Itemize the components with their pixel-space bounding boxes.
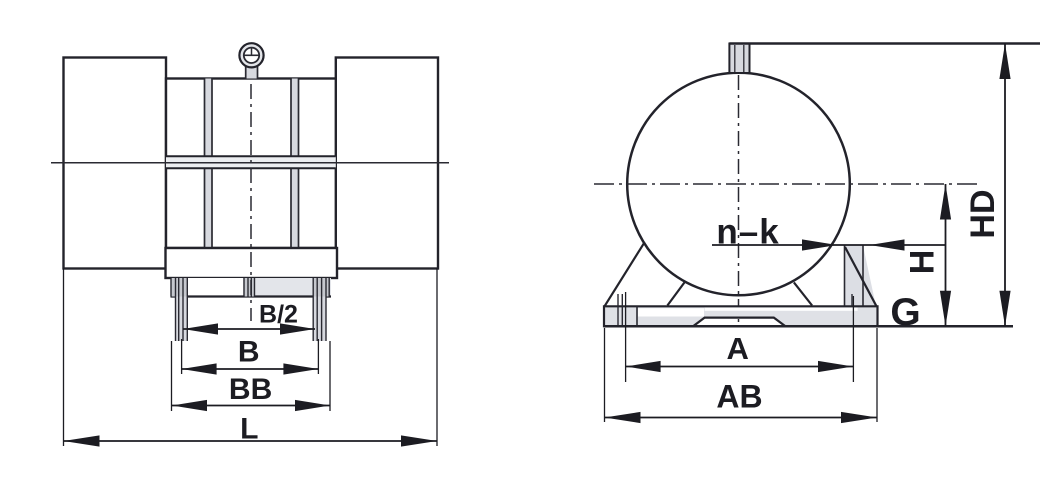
svg-text:BB: BB bbox=[229, 373, 272, 406]
svg-text:B: B bbox=[238, 336, 260, 369]
svg-text:G: G bbox=[890, 291, 920, 334]
svg-text:H: H bbox=[903, 250, 941, 275]
svg-text:L: L bbox=[240, 413, 258, 446]
svg-text:B/2: B/2 bbox=[259, 301, 298, 329]
svg-text:n–k: n–k bbox=[716, 213, 779, 252]
svg-text:AB: AB bbox=[716, 379, 762, 415]
svg-text:HD: HD bbox=[964, 189, 1002, 238]
svg-text:A: A bbox=[727, 331, 749, 366]
